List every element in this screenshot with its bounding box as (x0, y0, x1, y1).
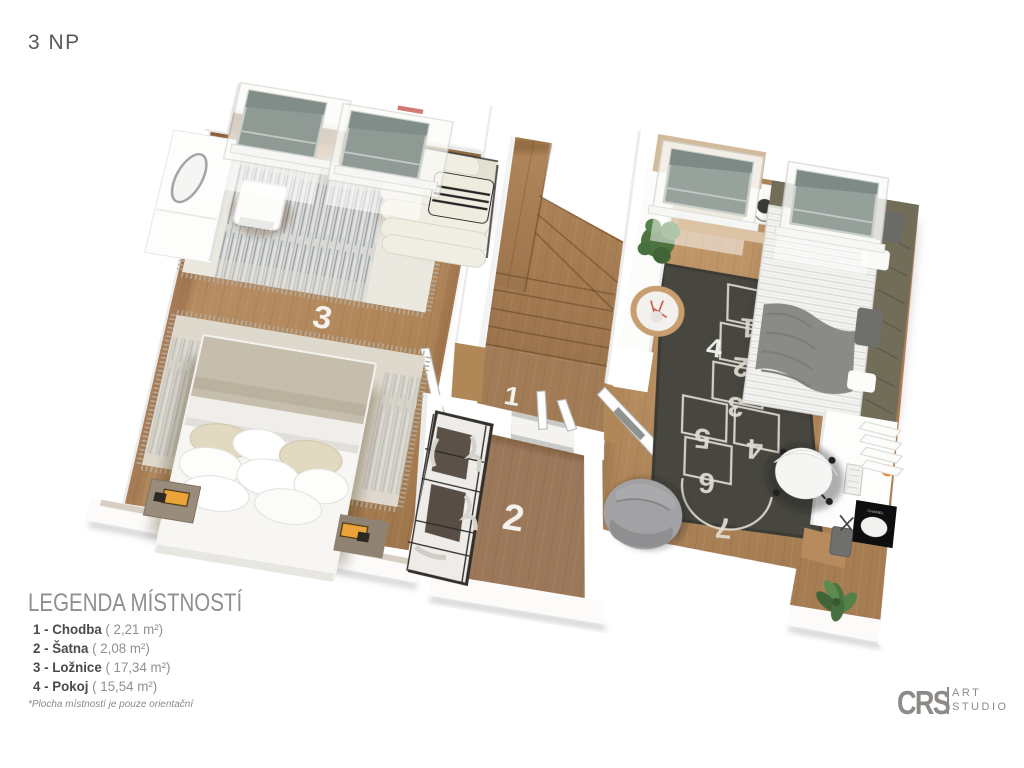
svg-text:4: 4 (745, 433, 764, 467)
svg-text:3: 3 (726, 390, 744, 423)
svg-text:6: 6 (697, 466, 716, 500)
svg-text:5: 5 (693, 422, 711, 456)
svg-text:7: 7 (714, 511, 733, 546)
